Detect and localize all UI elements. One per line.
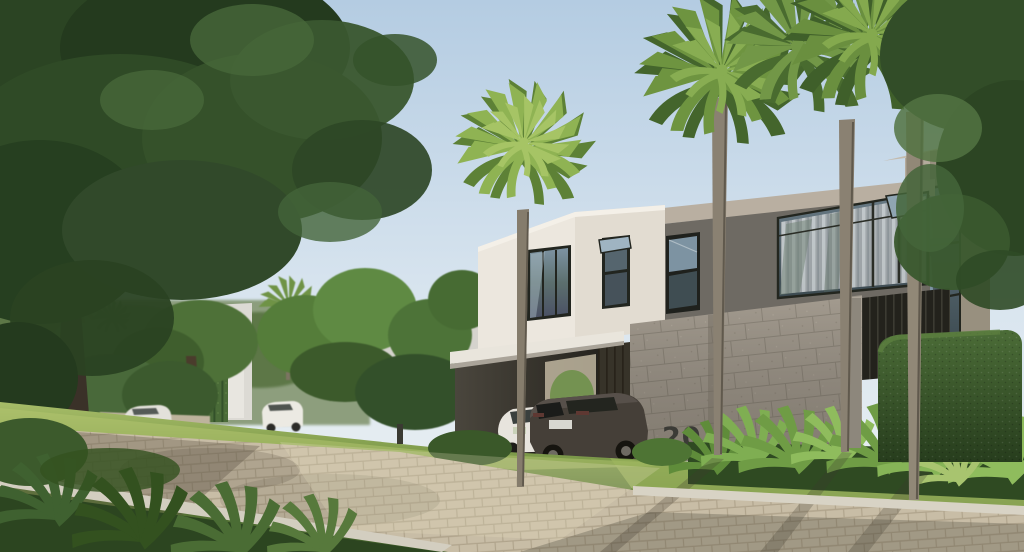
side-window: [527, 245, 571, 321]
front-tall-window: [599, 235, 631, 309]
bollard: [397, 424, 403, 444]
awning-window-pair: [666, 232, 700, 314]
scene-canvas: 20: [0, 0, 1024, 552]
architectural-rendering: 20: [0, 0, 1024, 552]
shrub: [632, 438, 692, 466]
